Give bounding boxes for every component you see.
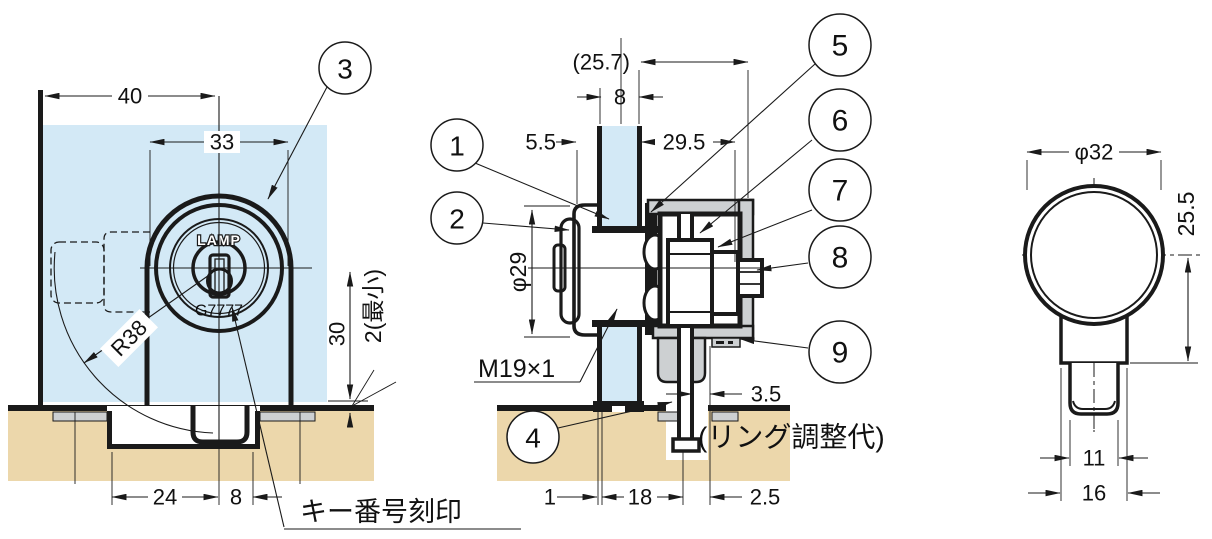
strike-plate-left (53, 412, 107, 421)
callout-9-number: 9 (832, 337, 849, 370)
callout-8-leader (757, 263, 808, 270)
dim-text-5-5: 5.5 (525, 130, 556, 155)
callout-1-leader (475, 163, 609, 219)
callout-4-number: 4 (525, 423, 541, 454)
knob-circle-outer (1025, 186, 1163, 324)
ring-note-text: (リング調整代) (698, 422, 885, 453)
strike-plate-right (260, 412, 315, 421)
dim-text-33: 33 (210, 130, 234, 155)
callout-9-leader (740, 339, 808, 348)
dim-text-1: 1 (544, 485, 556, 510)
dim-text-16: 16 (1082, 481, 1106, 506)
dim-text-2min: 2(最小) (360, 269, 386, 343)
dim-text-11: 11 (1083, 446, 1106, 471)
dim-text-24: 24 (153, 485, 177, 510)
technical-drawing-page: LAMP G7777 R38 40 33 30 (0, 0, 1212, 539)
callout-2-leader (483, 223, 569, 230)
spindle-end (738, 260, 762, 296)
callout-1-number: 1 (449, 131, 465, 162)
callout-5-number: 5 (832, 30, 849, 63)
spindle-boss (712, 252, 738, 314)
front-view: LAMP G7777 R38 40 33 30 (8, 42, 521, 529)
dim-text-dia32: φ32 (1075, 140, 1114, 165)
dim-text-30: 30 (325, 322, 350, 346)
dim-text-8b: 8 (230, 485, 242, 510)
callout-2-number: 2 (449, 204, 465, 235)
dim-text-dia29: φ29 (505, 252, 531, 293)
dim-text-40: 40 (118, 84, 142, 109)
callout-7-number: 7 (832, 175, 849, 208)
glass-panel (43, 125, 327, 402)
dim-text-29-5: 29.5 (663, 130, 706, 155)
key-stamp-note: キー番号刻印 (300, 497, 462, 527)
callout-3-number: 3 (337, 54, 353, 85)
callout-6-number: 6 (832, 105, 849, 138)
callout-8-number: 8 (832, 242, 849, 275)
lock-dimension-drawing: LAMP G7777 R38 40 33 30 (0, 0, 1212, 539)
lock-nut (668, 240, 712, 326)
dim-text-8: 8 (614, 85, 626, 110)
cabinet-side-wall (38, 90, 43, 406)
strike-flange-right (712, 412, 738, 421)
dim-text-3-5: 3.5 (751, 382, 782, 407)
thread-spec-text: M19×1 (478, 355, 555, 383)
dim-text-25-5: 25.5 (1173, 192, 1199, 237)
section-view: φ29 5.5 29.5 (25.7) 8 M19×1 3.5 (リング調整代) (431, 14, 885, 510)
end-view: φ32 25.5 11 16 (1022, 140, 1200, 506)
adjust-nut (673, 439, 699, 451)
dim-text-25-7: (25.7) (573, 50, 630, 75)
dim-text-2-5: 2.5 (750, 485, 781, 510)
dim-text-18: 18 (628, 485, 652, 510)
callout-6-leader (700, 140, 812, 233)
